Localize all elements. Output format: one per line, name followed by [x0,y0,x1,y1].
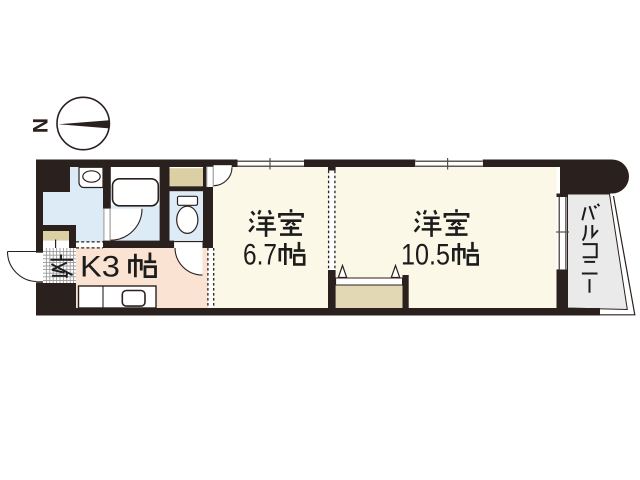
svg-text:6.7: 6.7 [243,239,277,272]
svg-text:N: N [30,118,53,133]
svg-text:10.5: 10.5 [401,239,450,272]
svg-text:K3: K3 [80,251,120,284]
